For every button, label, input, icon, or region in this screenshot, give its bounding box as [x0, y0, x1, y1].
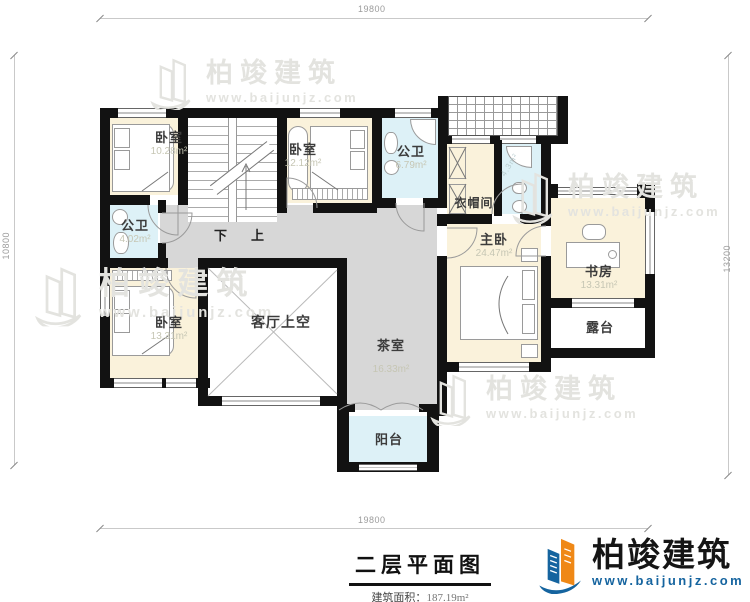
- room-area: 12.12m²: [272, 158, 334, 171]
- room-area: 13.31m²: [138, 331, 200, 344]
- stair-break-line: [210, 141, 274, 195]
- room-area: 13.31m²: [560, 280, 638, 293]
- room-name: 公卫: [121, 218, 149, 233]
- title-underline: [349, 583, 491, 586]
- dimension-right: 13200: [722, 245, 732, 273]
- chair: [582, 224, 606, 240]
- label-bath-top: 公卫 6.79m²: [384, 144, 438, 173]
- watermark: 柏竣建筑 www.baijunjz.com: [146, 54, 358, 110]
- window: [572, 298, 634, 308]
- room-area: 24.47m²: [452, 248, 536, 261]
- roof-tiles: [448, 96, 558, 136]
- wall: [100, 195, 150, 205]
- toilet: [512, 182, 527, 194]
- window: [395, 108, 431, 118]
- pillow: [350, 130, 365, 149]
- wall: [437, 256, 447, 416]
- wall: [372, 108, 382, 203]
- brand-logo-icon: [536, 532, 586, 594]
- wall: [158, 200, 166, 213]
- label-bedroom-top-left: 卧室 10.28m²: [138, 130, 200, 159]
- void-diagonal: [208, 270, 337, 396]
- watermark-logo-icon: [146, 54, 198, 110]
- watermark-site: www.baijunjz.com: [486, 406, 638, 421]
- wall: [634, 298, 655, 308]
- room-name: 书房: [585, 264, 613, 279]
- room-name: 卧室: [155, 315, 183, 330]
- label-master: 主卧 24.47m²: [452, 232, 536, 261]
- wall: [198, 258, 347, 268]
- building-area-value: 187.19m²: [426, 592, 468, 602]
- pillow: [114, 290, 130, 310]
- room-area: 6.79m²: [384, 160, 438, 173]
- label-terrace: 露台: [570, 320, 630, 336]
- wall: [438, 108, 447, 204]
- dimension-bottom: 19800: [358, 515, 386, 525]
- watermark-logo-icon: [30, 262, 90, 326]
- room-name: 客厅上空: [251, 314, 311, 330]
- brand-logo: 柏竣建筑 www.baijunjz.com: [536, 532, 744, 594]
- wall: [100, 108, 110, 388]
- room-name: 卧室: [155, 130, 183, 145]
- sink: [512, 200, 527, 213]
- dimension-left: 10800: [1, 232, 11, 260]
- label-cloakroom: 衣帽间: [442, 196, 506, 211]
- window: [459, 362, 529, 372]
- drawing-title-block: 二层平面图 建筑面积：187.19m²: [310, 549, 530, 602]
- wall: [337, 264, 347, 416]
- building-area-line: 建筑面积：187.19m²: [310, 589, 530, 602]
- window: [114, 378, 162, 388]
- wall: [313, 203, 377, 213]
- room-area: 10.28m²: [138, 146, 200, 159]
- staircase: [188, 118, 277, 222]
- drawing-title: 二层平面图: [310, 549, 530, 579]
- label-living-void: 客厅上空: [232, 314, 330, 332]
- dimension-line-bottom: [100, 528, 648, 529]
- building-area-label: 建筑面积：: [371, 592, 426, 602]
- balcony-railing: [359, 464, 417, 471]
- label-bedroom-top-mid: 卧室 12.12m²: [272, 142, 334, 171]
- wall: [548, 348, 655, 358]
- brand-site: www.baijunjz.com: [592, 573, 744, 588]
- label-study: 书房 13.31m²: [560, 264, 638, 293]
- watermark: 柏竣建筑 www.baijunjz.com: [426, 370, 638, 426]
- stair-down-label: 下: [214, 225, 227, 244]
- room-name: 主卧: [480, 232, 508, 247]
- dimension-top: 19800: [358, 4, 386, 14]
- room-name: 阳台: [375, 432, 403, 447]
- window: [222, 396, 320, 406]
- wall: [372, 198, 396, 208]
- wall: [438, 214, 492, 224]
- pillow: [350, 151, 365, 170]
- room-name: 公卫: [397, 144, 425, 159]
- pillow: [114, 313, 130, 333]
- pillow: [522, 270, 535, 300]
- wall: [541, 134, 551, 226]
- room-area: 4.02m²: [108, 234, 162, 247]
- wall: [277, 203, 287, 213]
- room-name: 卧室: [289, 142, 317, 157]
- desk-lamp: [608, 250, 617, 259]
- wall: [548, 298, 572, 308]
- wardrobe: [449, 147, 466, 179]
- room-area: 16.33m²: [360, 364, 422, 377]
- room-name: 衣帽间: [454, 196, 493, 210]
- dimension-line-left: [14, 55, 15, 465]
- window: [100, 286, 110, 316]
- floor-plan-canvas: 19800 19800 10800 13200: [0, 0, 750, 602]
- window: [118, 108, 166, 118]
- dresser: [292, 188, 368, 200]
- pillow: [522, 304, 535, 334]
- window: [558, 187, 637, 195]
- watermark-name: 柏竣建筑: [486, 376, 638, 403]
- room-name: 露台: [586, 320, 614, 335]
- pillow: [114, 128, 130, 148]
- label-tea-room: 茶室 16.33m²: [360, 338, 422, 377]
- dimension-line-top: [100, 18, 648, 19]
- room-tea: [347, 264, 437, 410]
- window: [645, 212, 655, 274]
- label-bath-left: 公卫 4.02m²: [108, 218, 162, 247]
- label-balcony: 阳台: [360, 432, 418, 448]
- brand-name: 柏竣建筑: [592, 538, 744, 573]
- pillow: [114, 150, 130, 170]
- label-bedroom-bottom-left: 卧室 13.31m²: [138, 315, 200, 344]
- window: [300, 108, 340, 118]
- nightstand: [521, 344, 538, 358]
- wall: [100, 258, 168, 268]
- stair-up-label: 上: [251, 225, 264, 244]
- window: [166, 378, 196, 388]
- wardrobe: [112, 270, 172, 281]
- watermark-site: www.baijunjz.com: [206, 90, 358, 105]
- watermark-name: 柏竣建筑: [206, 60, 358, 87]
- room-name: 茶室: [377, 338, 405, 353]
